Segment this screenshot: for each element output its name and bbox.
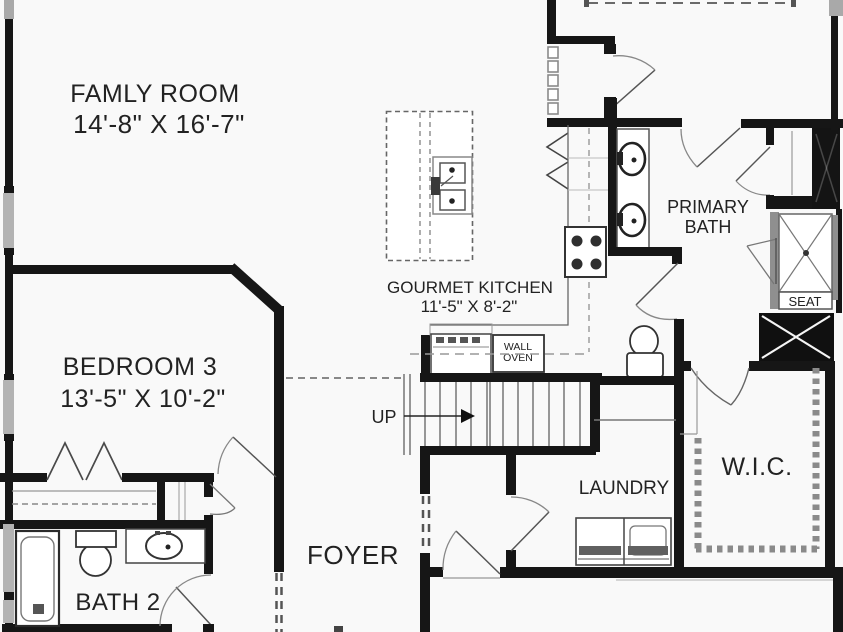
svg-text:UP: UP [371,407,396,427]
svg-text:BATH: BATH [685,217,732,237]
svg-text:GOURMET KITCHEN: GOURMET KITCHEN [387,278,553,297]
svg-text:LAUNDRY: LAUNDRY [579,478,670,499]
svg-text:14'-8" X 16'-7": 14'-8" X 16'-7" [73,109,245,139]
svg-text:11'-5" X 8'-2": 11'-5" X 8'-2" [421,297,518,316]
svg-text:SEAT: SEAT [789,294,822,309]
svg-text:FAMLY ROOM: FAMLY ROOM [70,80,239,108]
svg-text:BEDROOM 3: BEDROOM 3 [63,353,218,381]
svg-text:W.I.C.: W.I.C. [721,453,792,481]
svg-text:PRIMARY: PRIMARY [667,197,749,217]
svg-text:13'-5" X 10'-2": 13'-5" X 10'-2" [60,385,225,413]
svg-text:FOYER: FOYER [307,540,399,570]
svg-text:BATH 2: BATH 2 [75,589,160,616]
